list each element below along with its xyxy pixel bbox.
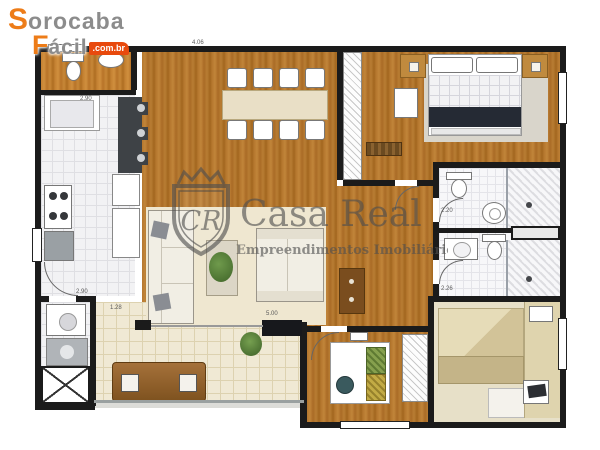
watermark-monogram: CR bbox=[181, 206, 222, 237]
floor-plan-image: 4.06 2.90 2.90 1.28 5.00 2.20 2.26 CR Ca… bbox=[0, 0, 600, 450]
office-daybed-foot bbox=[438, 356, 524, 384]
wall-service-divider bbox=[41, 90, 136, 95]
window-kitchen bbox=[32, 228, 42, 262]
window-suite bbox=[558, 72, 567, 124]
washing-machine bbox=[46, 338, 88, 366]
dining-chair bbox=[227, 120, 247, 140]
dimension-label: 5.00 bbox=[266, 311, 278, 317]
dimension-label: 2.90 bbox=[76, 289, 88, 295]
window-bedroom2 bbox=[340, 421, 410, 429]
wall-laundry-bottom bbox=[35, 404, 95, 410]
kitchen-cabinet bbox=[112, 208, 140, 258]
logo-word2-initial: F bbox=[32, 30, 49, 60]
social-shower bbox=[506, 240, 560, 296]
bed-bench bbox=[431, 128, 521, 135]
fridge bbox=[112, 174, 140, 206]
bed-pillow bbox=[366, 347, 386, 374]
shower-niche bbox=[511, 226, 560, 240]
wall-stub bbox=[41, 296, 49, 302]
realtor-watermark: CR Casa Real Empreendimentos Imobiliário… bbox=[148, 166, 448, 276]
wall-bath-divider bbox=[439, 228, 511, 233]
bar-stool bbox=[134, 152, 148, 165]
bed-pillow bbox=[476, 57, 518, 73]
bed-pillow bbox=[431, 57, 473, 73]
wall-bedroom2-left bbox=[300, 322, 307, 422]
wall-balcony-left bbox=[90, 302, 96, 406]
dimension-label: 1.28 bbox=[110, 305, 122, 311]
dining-chair bbox=[305, 68, 325, 88]
sofa-pillow bbox=[153, 293, 172, 312]
suite-basin bbox=[482, 202, 506, 224]
suite-pouf-table bbox=[394, 88, 418, 118]
wall-service-right bbox=[131, 52, 137, 90]
logo-word1-initial: S bbox=[8, 3, 28, 36]
kitchen-sink bbox=[50, 100, 94, 128]
sliding-door-line bbox=[151, 325, 263, 327]
suite-closet bbox=[343, 52, 362, 180]
social-toilet-bowl bbox=[487, 241, 502, 260]
social-vanity bbox=[444, 238, 478, 260]
suite-shower bbox=[506, 168, 560, 228]
bed-pillow bbox=[366, 374, 386, 401]
site-logo: Sorocaba Fácil.com.br bbox=[8, 5, 129, 59]
oven bbox=[44, 231, 74, 261]
bedroom2-stool bbox=[336, 376, 354, 394]
bedroom2-bed bbox=[330, 342, 390, 404]
dining-chair bbox=[253, 68, 273, 88]
bar-stool bbox=[134, 102, 148, 115]
dining-chair bbox=[253, 120, 273, 140]
dimension-label: 4.06 bbox=[192, 40, 204, 46]
office-desk bbox=[524, 302, 561, 418]
bedroom2-nightstand bbox=[350, 332, 368, 341]
laundry-tank bbox=[46, 304, 86, 336]
office-chair-mat bbox=[523, 380, 549, 404]
laptop bbox=[527, 384, 546, 398]
wall-bedroom2-top bbox=[307, 326, 321, 332]
dimension-label: 2.26 bbox=[441, 286, 453, 292]
window-office bbox=[558, 318, 567, 370]
cooktop bbox=[44, 185, 72, 229]
bar-stool bbox=[134, 127, 148, 140]
wc-toilet-bowl bbox=[66, 61, 81, 81]
dining-chair bbox=[227, 68, 247, 88]
bed-throw bbox=[429, 107, 521, 127]
wall-stub-living bbox=[135, 320, 151, 330]
nightstand-left bbox=[400, 54, 426, 78]
wall-bedroom2-top bbox=[347, 326, 433, 332]
suite-bed bbox=[428, 54, 522, 136]
nightstand-right bbox=[522, 54, 548, 78]
logo-domain-badge: .com.br bbox=[89, 42, 130, 55]
balcony-outer-shadow bbox=[94, 403, 304, 408]
wall-office-top bbox=[428, 296, 566, 302]
logo-line1: Sorocaba bbox=[8, 5, 129, 35]
dimension-label: 2.90 bbox=[80, 96, 92, 102]
dining-chair bbox=[305, 120, 325, 140]
crown-icon bbox=[178, 169, 224, 184]
dining-chair bbox=[279, 68, 299, 88]
duct-shaft bbox=[41, 366, 90, 404]
watermark-tagline: Empreendimentos Imobiliários bbox=[236, 243, 448, 258]
bedroom2-closet bbox=[402, 334, 428, 402]
wall-bath-top bbox=[433, 162, 566, 168]
dining-chair bbox=[279, 120, 299, 140]
balcony-plant bbox=[240, 332, 262, 356]
logo-word2-rest: ácil bbox=[49, 36, 88, 59]
tv-panel bbox=[262, 320, 302, 336]
suite-shoe-rack bbox=[366, 142, 402, 156]
balcony-railing bbox=[94, 400, 304, 403]
dining-table bbox=[222, 90, 328, 120]
wall-dining-closet bbox=[337, 52, 343, 180]
laptop bbox=[529, 306, 553, 322]
office-rug bbox=[488, 388, 526, 418]
suite-toilet-bowl bbox=[451, 179, 467, 198]
wall-office-left bbox=[428, 302, 434, 428]
watermark-brand: Casa Real bbox=[240, 194, 422, 235]
logo-line2: Fácil.com.br bbox=[8, 32, 129, 59]
balcony-sideboard bbox=[112, 362, 206, 402]
